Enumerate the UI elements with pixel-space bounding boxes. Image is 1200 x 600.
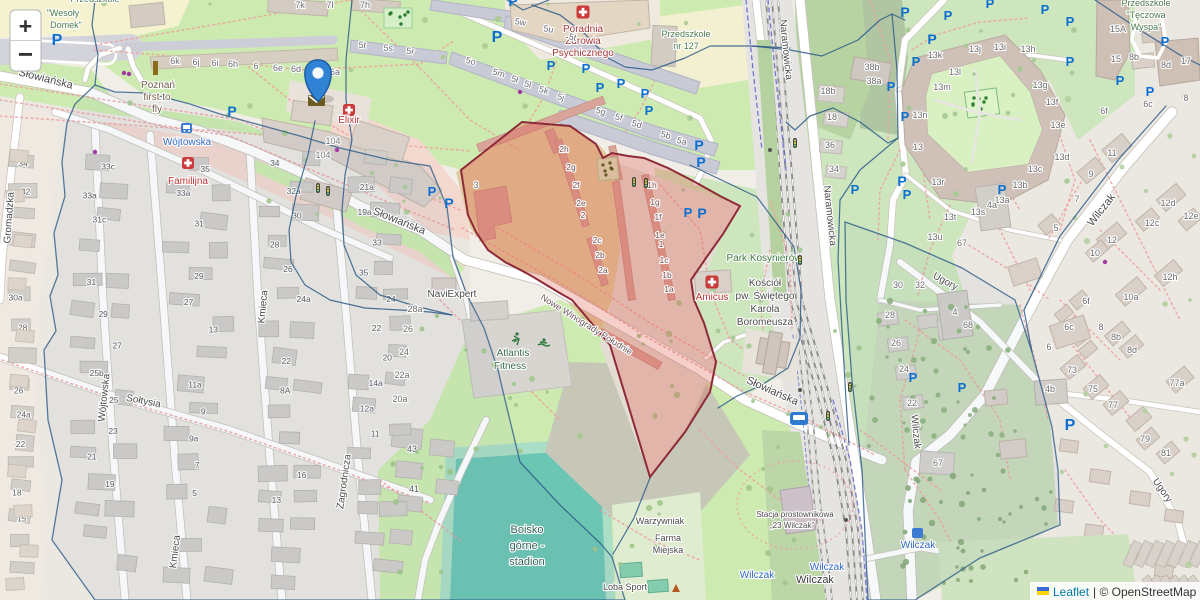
svg-text:1h: 1h	[647, 180, 657, 190]
svg-text:Miejska: Miejska	[653, 545, 684, 555]
svg-text:3: 3	[473, 180, 478, 190]
svg-text:2h: 2h	[559, 144, 569, 154]
svg-text:P: P	[547, 58, 556, 73]
svg-text:13f: 13f	[1046, 97, 1059, 107]
svg-text:15: 15	[1111, 54, 1121, 64]
svg-text:P: P	[428, 184, 437, 199]
svg-text:4b: 4b	[1045, 384, 1055, 394]
svg-text:Park Kosynierów: Park Kosynierów	[726, 253, 802, 264]
svg-text:1b: 1b	[662, 270, 672, 280]
svg-text:1a: 1a	[664, 284, 674, 294]
svg-text:5r: 5r	[406, 46, 415, 57]
svg-text:12d: 12d	[1160, 198, 1175, 208]
svg-text:P: P	[944, 8, 953, 23]
svg-text:13: 13	[913, 142, 923, 152]
svg-text:2a: 2a	[598, 265, 608, 275]
svg-text:7k: 7k	[295, 0, 305, 10]
svg-text:5: 5	[1053, 223, 1058, 233]
svg-text:Fitness: Fitness	[494, 361, 526, 372]
svg-text:13s: 13s	[971, 207, 986, 217]
svg-text:22a: 22a	[394, 370, 409, 380]
svg-text:P: P	[492, 29, 503, 46]
svg-text:fly: fly	[152, 104, 162, 115]
svg-text:36: 36	[825, 140, 835, 150]
svg-text:13l: 13l	[949, 67, 961, 77]
svg-text:13r: 13r	[931, 177, 944, 187]
svg-text:P: P	[227, 103, 236, 119]
svg-text:18b: 18b	[820, 86, 835, 96]
svg-text:13h: 13h	[1020, 44, 1035, 54]
svg-text:Amicus: Amicus	[696, 292, 729, 303]
svg-text:P: P	[617, 76, 626, 91]
svg-text:6d: 6d	[291, 64, 301, 74]
svg-text:6k: 6k	[170, 56, 180, 66]
svg-text:10a: 10a	[1123, 292, 1138, 302]
svg-text:81: 81	[1161, 448, 1171, 458]
svg-text:6h: 6h	[228, 59, 238, 69]
svg-text:2e: 2e	[576, 198, 586, 208]
svg-text:7ł: 7ł	[326, 0, 333, 10]
svg-text:NaviExpert: NaviExpert	[428, 289, 477, 300]
svg-text:Warzywniak: Warzywniak	[636, 516, 685, 526]
svg-text:P: P	[903, 187, 912, 202]
svg-text:nr 127: nr 127	[673, 41, 699, 51]
svg-text:8d: 8d	[1127, 345, 1137, 355]
svg-text:P: P	[645, 103, 654, 118]
svg-text:8: 8	[1098, 322, 1103, 332]
svg-text:P: P	[927, 31, 936, 47]
svg-text:Przedszkole: Przedszkole	[1121, 0, 1170, 8]
svg-text:P: P	[1066, 54, 1075, 69]
svg-text:13n: 13n	[912, 110, 927, 120]
svg-text:30: 30	[893, 280, 903, 290]
svg-text:P: P	[1065, 417, 1076, 434]
svg-text:P: P	[1066, 14, 1075, 29]
svg-text:P: P	[901, 109, 910, 124]
svg-text:24a: 24a	[17, 409, 31, 419]
svg-text:P: P	[1041, 2, 1050, 17]
svg-text:7h: 7h	[360, 0, 370, 10]
svg-text:22: 22	[907, 398, 917, 408]
svg-text:−: −	[18, 39, 33, 69]
svg-text:P: P	[1146, 84, 1155, 99]
svg-text:20a: 20a	[392, 394, 407, 404]
svg-text:Familijna: Familijna	[168, 176, 208, 187]
svg-text:P: P	[582, 61, 591, 76]
svg-text:P: P	[887, 79, 896, 94]
svg-text:104: 104	[315, 150, 330, 160]
svg-text:13c: 13c	[1028, 164, 1043, 174]
svg-text:6e: 6e	[273, 63, 283, 73]
svg-text:13k: 13k	[928, 50, 943, 60]
svg-text:12e: 12e	[1183, 211, 1198, 221]
svg-text:4a: 4a	[987, 200, 997, 210]
svg-text:13m: 13m	[933, 82, 951, 92]
svg-text:13b: 13b	[1012, 180, 1027, 190]
svg-text:Boromeusza: Boromeusza	[737, 317, 794, 328]
svg-text:Wilczak: Wilczak	[810, 562, 845, 573]
svg-text:1c: 1c	[660, 255, 670, 265]
svg-text:13d: 13d	[1054, 152, 1069, 162]
svg-text:8d: 8d	[1161, 60, 1171, 70]
svg-text:28a: 28a	[407, 304, 422, 314]
svg-text:P: P	[684, 205, 693, 220]
svg-text:P: P	[958, 380, 967, 395]
svg-text:77a: 77a	[1169, 378, 1184, 388]
svg-text:5s: 5s	[383, 43, 394, 54]
svg-text:15A: 15A	[1110, 24, 1126, 34]
svg-text:Przedszkole: Przedszkole	[661, 29, 710, 39]
svg-text:13u: 13u	[927, 232, 942, 242]
svg-text:22: 22	[16, 439, 26, 449]
svg-text:| © OpenStreetMap: | © OpenStreetMap	[1093, 585, 1197, 599]
svg-text:stadion: stadion	[509, 556, 544, 568]
svg-text:Psychicznego: Psychicznego	[552, 48, 614, 59]
svg-text:P: P	[912, 54, 921, 69]
svg-text:104: 104	[325, 136, 340, 146]
svg-text:P: P	[697, 205, 706, 221]
svg-text:Wilczak: Wilczak	[740, 570, 775, 581]
svg-text:13g: 13g	[1032, 80, 1047, 90]
svg-text:"Tęczowa: "Tęczowa	[1126, 10, 1165, 20]
svg-text:77: 77	[1108, 400, 1118, 410]
svg-text:73: 73	[1067, 365, 1077, 375]
svg-text:26: 26	[403, 324, 413, 334]
svg-text:24: 24	[399, 347, 409, 357]
svg-text:Loba Sport: Loba Sport	[603, 582, 648, 592]
svg-text:Karola: Karola	[751, 304, 780, 315]
svg-text:6c: 6c	[1143, 99, 1153, 109]
svg-text:18: 18	[12, 488, 22, 498]
svg-text:26: 26	[891, 338, 901, 348]
svg-text:2f: 2f	[572, 180, 580, 190]
svg-text:2b: 2b	[595, 250, 605, 260]
svg-text:2c: 2c	[593, 235, 603, 245]
svg-text:Elixir: Elixir	[338, 115, 360, 126]
svg-text:28: 28	[885, 310, 895, 320]
svg-text:P: P	[641, 86, 650, 101]
svg-text:13e: 13e	[1050, 120, 1065, 130]
svg-text:67: 67	[933, 458, 943, 468]
svg-text:38a: 38a	[866, 76, 881, 86]
svg-text:P: P	[696, 154, 705, 170]
svg-text:8: 8	[1183, 93, 1188, 103]
svg-text:6i: 6i	[211, 58, 218, 68]
svg-text:12: 12	[1107, 235, 1117, 245]
svg-text:P: P	[52, 32, 63, 49]
svg-text:13j: 13j	[969, 44, 981, 54]
svg-text:P: P	[851, 182, 860, 197]
svg-text:Boisko: Boisko	[510, 524, 543, 536]
svg-text:Kościół: Kościół	[749, 278, 782, 289]
svg-text:P: P	[508, 0, 517, 9]
svg-text:8b: 8b	[1111, 332, 1121, 342]
svg-text:68: 68	[963, 320, 973, 330]
svg-text:6: 6	[253, 61, 258, 71]
svg-text:Wilczak: Wilczak	[796, 574, 834, 586]
svg-text:13i: 13i	[994, 42, 1006, 52]
svg-text:2: 2	[581, 210, 586, 220]
svg-text:17: 17	[1181, 56, 1191, 66]
svg-text:Domek": Domek"	[50, 20, 82, 30]
svg-text:13t: 13t	[944, 212, 957, 222]
svg-text:12c: 12c	[1145, 218, 1160, 228]
svg-text:„23 Wilczak”: „23 Wilczak”	[770, 521, 814, 530]
svg-text:67: 67	[957, 238, 967, 248]
svg-text:9: 9	[1088, 169, 1093, 179]
svg-text:first.to: first.to	[143, 92, 171, 103]
svg-text:1g: 1g	[650, 197, 660, 207]
svg-text:6c: 6c	[1064, 322, 1074, 332]
svg-text:P: P	[596, 80, 605, 95]
svg-text:6f: 6f	[1100, 106, 1108, 116]
svg-text:5u: 5u	[543, 23, 555, 35]
svg-text:Farma: Farma	[655, 533, 681, 543]
svg-text:P: P	[444, 195, 453, 211]
svg-text:6j: 6j	[192, 57, 199, 67]
svg-text:Wójtowska: Wójtowska	[163, 137, 212, 148]
svg-text:1: 1	[659, 239, 664, 249]
svg-text:pw. Świętego: pw. Świętego	[736, 289, 795, 302]
svg-text:Leaflet: Leaflet	[1053, 585, 1090, 599]
svg-text:6f: 6f	[1082, 296, 1090, 306]
svg-text:11: 11	[1107, 148, 1116, 158]
svg-text:Poznań: Poznań	[141, 80, 175, 91]
svg-text:P: P	[909, 370, 918, 385]
svg-text:Stacja prostownikowa: Stacja prostownikowa	[756, 510, 834, 519]
svg-text:5w: 5w	[514, 16, 528, 28]
svg-text:P: P	[900, 4, 909, 20]
svg-text:+: +	[19, 13, 32, 39]
svg-text:32: 32	[915, 280, 925, 290]
svg-text:75: 75	[1088, 384, 1098, 394]
svg-text:Wilczak: Wilczak	[901, 540, 936, 551]
svg-text:P: P	[1116, 73, 1125, 88]
svg-text:"Wesoły: "Wesoły	[47, 8, 80, 18]
svg-text:Wyspa": Wyspa"	[1131, 22, 1162, 32]
svg-text:30a: 30a	[9, 293, 23, 303]
svg-text:P: P	[694, 137, 703, 153]
svg-text:12h: 12h	[1162, 272, 1177, 282]
svg-text:8b: 8b	[1129, 52, 1139, 62]
svg-text:Atlantis: Atlantis	[497, 348, 530, 359]
svg-text:6: 6	[1046, 342, 1051, 352]
svg-text:10: 10	[1090, 248, 1100, 258]
svg-text:1f: 1f	[654, 212, 662, 222]
svg-text:P: P	[986, 0, 995, 11]
svg-text:18: 18	[827, 112, 837, 122]
svg-text:24: 24	[899, 364, 909, 374]
svg-text:79: 79	[1140, 434, 1150, 444]
svg-text:P: P	[998, 182, 1007, 197]
svg-text:4: 4	[952, 307, 957, 317]
svg-text:34: 34	[829, 164, 839, 174]
svg-text:38b: 38b	[864, 62, 879, 72]
svg-text:2g: 2g	[566, 162, 576, 172]
svg-text:7: 7	[1074, 194, 1079, 204]
svg-text:Przedszkole: Przedszkole	[70, 0, 119, 4]
svg-text:P: P	[1161, 34, 1170, 49]
svg-text:górne -: górne -	[510, 540, 545, 552]
